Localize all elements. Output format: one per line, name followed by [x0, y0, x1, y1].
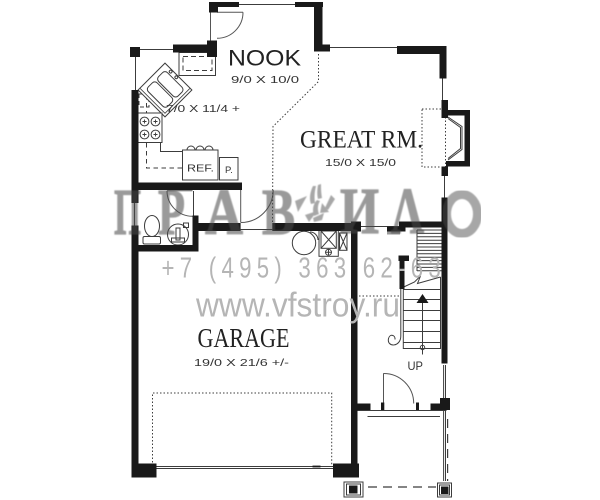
svg-text:15/0 X 15/0: 15/0 X 15/0	[325, 157, 396, 169]
svg-text:REF.: REF.	[187, 163, 214, 175]
svg-text:П: П	[114, 176, 141, 249]
svg-text:NOOK: NOOK	[228, 46, 301, 71]
svg-text:В: В	[262, 176, 295, 249]
svg-text:GREAT RM.: GREAT RM.	[300, 125, 423, 154]
svg-text:P.: P.	[225, 165, 233, 176]
svg-text:www.vfstroy.ru: www.vfstroy.ru	[195, 287, 400, 325]
svg-text:И: И	[340, 175, 379, 248]
svg-text:19/0 X 21/6 +/-: 19/0 X 21/6 +/-	[194, 357, 290, 369]
svg-text:7/0 X 11/4 +: 7/0 X 11/4 +	[166, 103, 240, 115]
svg-text:GARAGE: GARAGE	[198, 322, 290, 353]
svg-text:А: А	[205, 176, 243, 249]
svg-text:Λ: Λ	[391, 175, 424, 248]
svg-text:Р: Р	[158, 176, 185, 249]
svg-text:9/0 X 10/0: 9/0 X 10/0	[231, 74, 299, 86]
svg-text:+7 (495) 363 62-63: +7 (495) 363 62-63	[161, 253, 440, 284]
svg-text:UP: UP	[408, 361, 424, 373]
